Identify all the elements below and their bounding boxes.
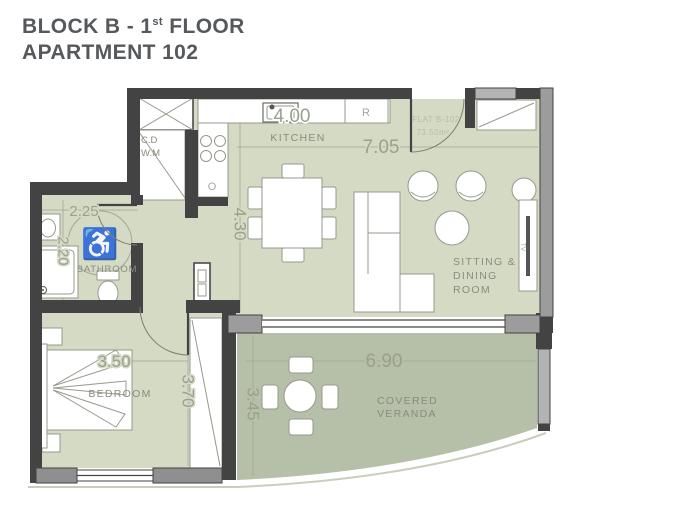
dim-bathroom-depth: 2.20 [55,236,72,265]
bedroom-window [77,470,153,481]
refrigerator-label: R [362,107,370,119]
dim-bedroom-depth: 3.70 [179,374,198,407]
side-table [512,178,536,202]
veranda-label-2: VERANDA [377,408,437,420]
dim-bedroom-width: 3.50 [97,352,130,371]
floor-plan-page: BLOCK B - 1st FLOOR APARTMENT 102 [0,0,685,508]
dim-living-width: 7.05 [363,137,400,158]
dim-kitchen-width: 4.00 [274,106,311,127]
sitting-label-1: SITTING & [453,256,516,268]
kitchen-label: KITCHEN [270,132,325,144]
tv-label: TV [519,243,526,252]
dim-bathroom-width: 2.25 [69,203,98,220]
entrance-closet [477,100,536,130]
bathroom-label: BATHROOM [77,264,138,275]
veranda-label-1: COVERED [377,395,438,407]
right-wall [540,88,553,317]
bedroom-bottom-wall [153,468,222,483]
dim-veranda-width: 6.90 [366,351,403,372]
oven-label: O [208,181,217,193]
entry-wall-light [475,88,516,99]
flat-area-label: 73.50m² [417,128,450,137]
duct [194,263,210,305]
bedroom-label: BEDROOM [88,388,151,400]
dim-kitchen-depth: 4.30 [231,207,250,240]
flat-name-label: FLAT B-102 [412,115,459,124]
veranda-right-wall [538,349,550,424]
cupboard-label: C.D [141,135,158,146]
sliding-door [228,315,540,333]
bedroom-bottom-wall [36,468,77,483]
service-shaft [139,98,193,130]
sitting-label-2: DINING [453,270,498,282]
washing-machine-label: W.M [141,148,160,159]
floor-plan-drawing: ♿ [0,0,685,508]
toilet [97,271,119,305]
armchair [408,171,438,201]
coffee-table [435,211,469,245]
wheelchair-icon: ♿ [81,226,118,261]
armchair [456,171,486,201]
dim-veranda-depth: 3.45 [244,387,263,420]
sitting-label-3: ROOM [453,284,491,296]
